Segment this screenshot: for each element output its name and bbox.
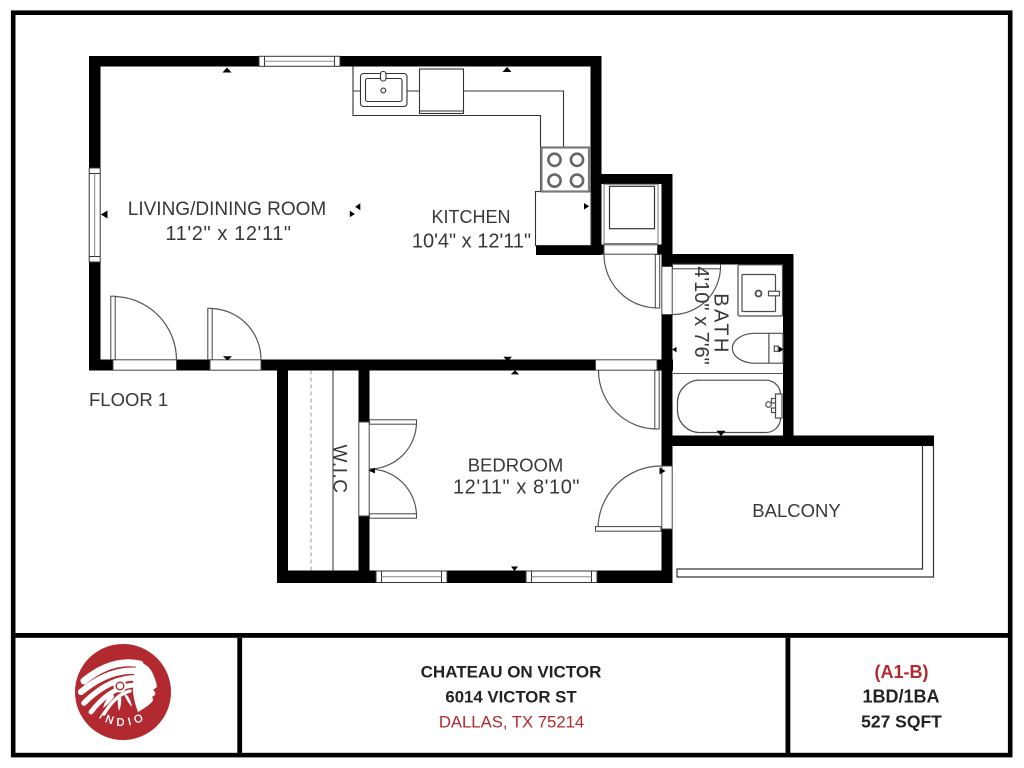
svg-text:12'11" x 8'10": 12'11" x 8'10" <box>453 477 580 499</box>
svg-text:4'10" x 7'6": 4'10" x 7'6" <box>690 266 712 365</box>
svg-text:6014 VICTOR ST: 6014 VICTOR ST <box>445 688 577 707</box>
svg-text:527 SQFT: 527 SQFT <box>861 712 942 732</box>
svg-text:W.I.C: W.I.C <box>329 445 350 494</box>
svg-text:KITCHEN: KITCHEN <box>431 207 510 227</box>
svg-text:DALLAS, TX 75214: DALLAS, TX 75214 <box>439 713 584 732</box>
svg-text:10'4" x 12'11": 10'4" x 12'11" <box>412 231 531 253</box>
svg-text:(A1-B): (A1-B) <box>875 662 929 682</box>
svg-text:LIVING/DINING ROOM: LIVING/DINING ROOM <box>128 199 326 220</box>
svg-text:FLOOR 1: FLOOR 1 <box>89 389 168 410</box>
svg-text:BEDROOM: BEDROOM <box>468 455 564 476</box>
svg-text:11'2" x 12'11": 11'2" x 12'11" <box>165 223 291 245</box>
svg-text:1BD/1BA: 1BD/1BA <box>862 687 939 707</box>
svg-text:CHATEAU ON VICTOR: CHATEAU ON VICTOR <box>421 663 602 682</box>
svg-text:BALCONY: BALCONY <box>752 500 840 521</box>
